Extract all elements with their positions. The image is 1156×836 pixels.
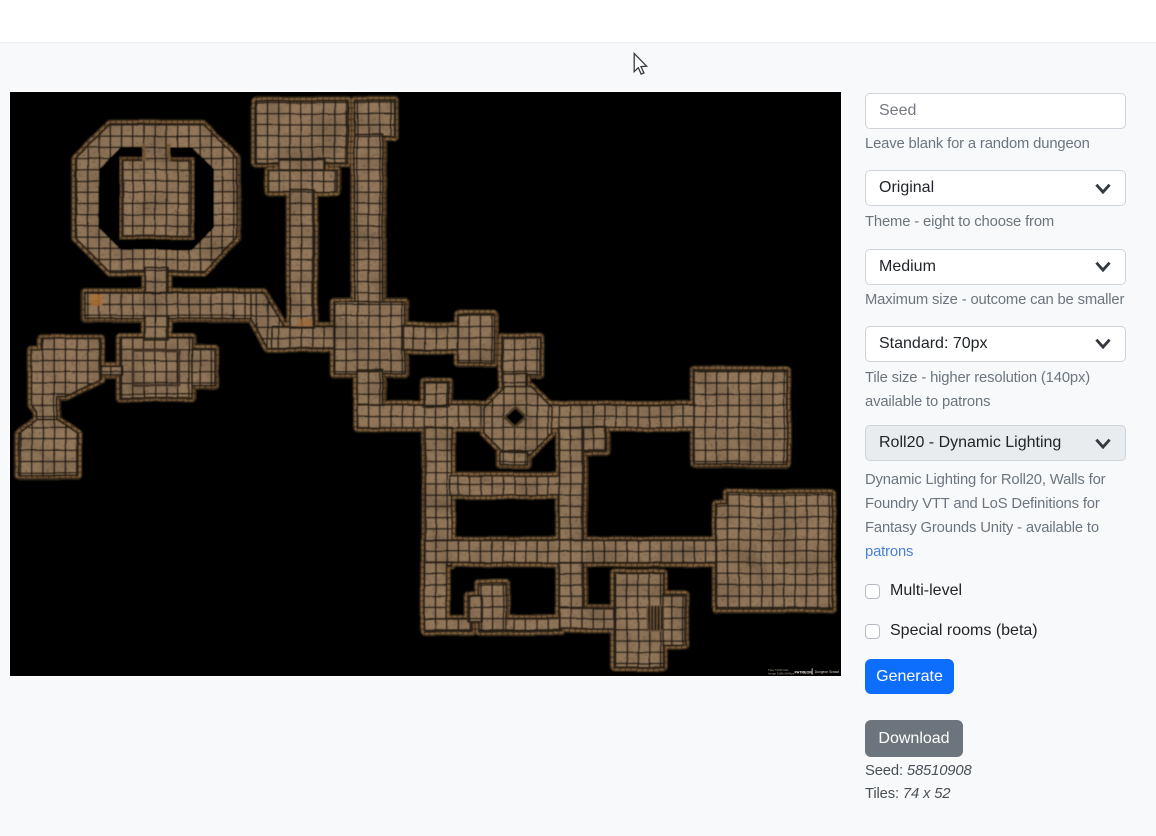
- svg-text:Image 5180x3640px: Image 5180x3640px: [768, 672, 795, 676]
- svg-text:Dungeon Scrawl: Dungeon Scrawl: [815, 670, 839, 674]
- svg-text:PATREON: PATREON: [795, 671, 813, 675]
